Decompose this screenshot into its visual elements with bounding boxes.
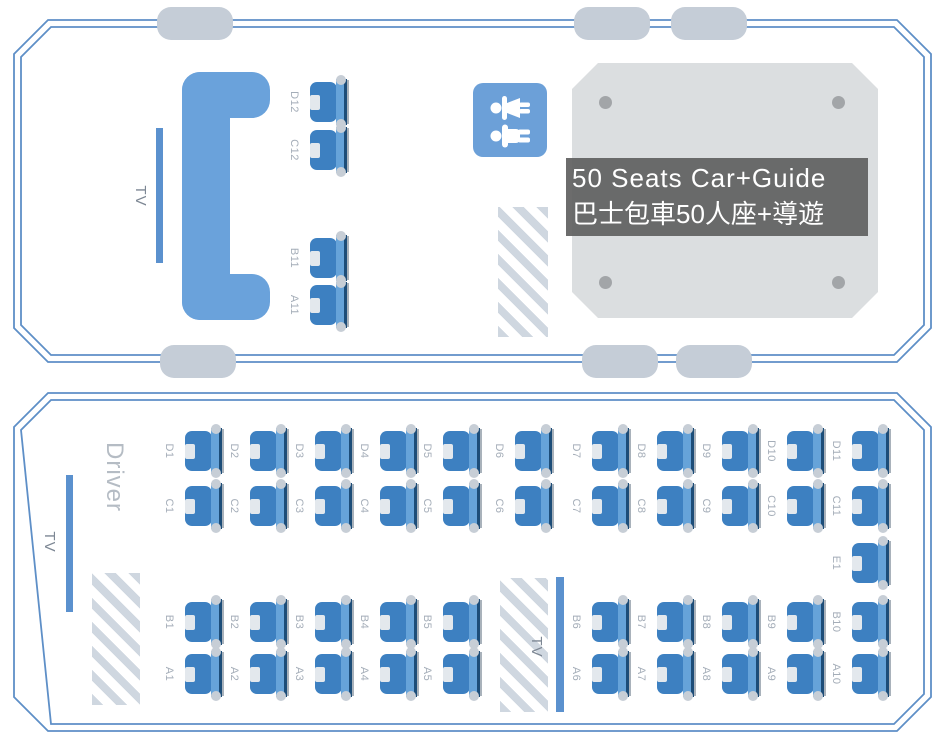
seat-d11[interactable]: D11 xyxy=(852,428,891,474)
seat-backrest-frame xyxy=(889,484,891,528)
seat-tray xyxy=(380,667,390,682)
seat-tray xyxy=(185,444,195,459)
rear-tv-label: TV xyxy=(133,176,149,216)
restroom-icon xyxy=(473,83,547,157)
seat-tray xyxy=(787,615,797,630)
seat-tray xyxy=(443,667,453,682)
seat-a10[interactable]: A10 xyxy=(852,651,891,697)
seat-tray xyxy=(185,499,195,514)
armrest-icon xyxy=(878,691,888,701)
seat-tray xyxy=(657,667,667,682)
seat-backrest-frame xyxy=(889,600,891,644)
armrest-icon xyxy=(469,595,479,605)
armrest-icon xyxy=(878,479,888,489)
seat-tray xyxy=(592,444,602,459)
armrest-icon xyxy=(541,523,551,533)
seat-tray xyxy=(443,499,453,514)
armrest-icon xyxy=(878,536,888,546)
seat-tray xyxy=(787,667,797,682)
seat-tray xyxy=(657,499,667,514)
seat-backrest-frame xyxy=(889,429,891,473)
rear-tv-screen xyxy=(156,128,163,263)
front-tv-screen xyxy=(66,475,73,612)
armrest-icon xyxy=(541,424,551,434)
seat-tray xyxy=(515,444,525,459)
seat-tray xyxy=(592,499,602,514)
armrest-icon xyxy=(541,468,551,478)
seat-tray xyxy=(250,444,260,459)
seat-backrest-frame xyxy=(480,600,482,644)
seat-tray xyxy=(722,444,732,459)
seat-tray xyxy=(185,615,195,630)
seat-tray xyxy=(310,298,320,313)
armrest-icon xyxy=(878,580,888,590)
seat-tray xyxy=(380,444,390,459)
wheel-icon xyxy=(582,345,658,378)
seat-tray xyxy=(592,615,602,630)
seat-c6[interactable]: C6 xyxy=(515,483,554,529)
armrest-icon xyxy=(878,523,888,533)
seat-tray xyxy=(443,615,453,630)
rear-door-hatch xyxy=(498,207,548,337)
seat-backrest-frame xyxy=(480,652,482,696)
wheel-icon xyxy=(574,7,650,40)
middle-tv-label: TV xyxy=(529,627,545,667)
seat-tray xyxy=(515,499,525,514)
seat-tray xyxy=(250,499,260,514)
seat-tray xyxy=(592,667,602,682)
seat-tray xyxy=(787,444,797,459)
armrest-icon xyxy=(336,123,346,133)
wheel-icon xyxy=(160,345,236,378)
armrest-icon xyxy=(469,647,479,657)
rear-bench-top-arm xyxy=(182,72,270,118)
armrest-icon xyxy=(469,691,479,701)
product-title-en: 50 Seats Car+Guide xyxy=(572,160,868,196)
seat-tray xyxy=(722,615,732,630)
armrest-icon xyxy=(878,468,888,478)
screw-icon xyxy=(832,96,845,109)
seat-tray xyxy=(852,615,862,630)
seat-tray xyxy=(443,444,453,459)
wheel-icon xyxy=(671,7,747,40)
armrest-icon xyxy=(336,75,346,85)
seat-tray xyxy=(380,615,390,630)
armrest-icon xyxy=(878,595,888,605)
screw-icon xyxy=(599,96,612,109)
seat-tray xyxy=(852,667,862,682)
seat-tray xyxy=(315,499,325,514)
seat-backrest-frame xyxy=(347,80,349,124)
bus-seat-map: TV D12 C12 B11 A11 xyxy=(0,0,945,756)
wheel-icon xyxy=(157,7,233,40)
seat-d12[interactable]: D12 xyxy=(310,79,349,125)
seat-tray xyxy=(852,499,862,514)
seat-tray xyxy=(315,444,325,459)
driver-label: Driver xyxy=(99,417,129,537)
screw-icon xyxy=(599,276,612,289)
seat-b11[interactable]: B11 xyxy=(310,235,349,281)
seat-tray xyxy=(250,615,260,630)
seat-tray xyxy=(250,667,260,682)
seat-tray xyxy=(722,667,732,682)
seat-tray xyxy=(315,615,325,630)
product-title-overlay: 50 Seats Car+Guide 巴士包車50人座+導遊 xyxy=(566,158,868,236)
seat-tray xyxy=(722,499,732,514)
product-title-zh: 巴士包車50人座+導遊 xyxy=(572,196,868,233)
front-door-hatch xyxy=(92,573,140,705)
armrest-icon xyxy=(878,424,888,434)
seat-b10[interactable]: B10 xyxy=(852,599,891,645)
armrest-icon xyxy=(336,322,346,332)
seat-tray xyxy=(852,444,862,459)
seat-backrest-frame xyxy=(347,128,349,172)
screw-icon xyxy=(832,276,845,289)
seat-backrest-frame xyxy=(889,541,891,585)
seat-tray xyxy=(310,143,320,158)
rear-bench-bottom-arm xyxy=(182,274,270,320)
seat-e1[interactable]: E1 xyxy=(852,540,891,586)
armrest-icon xyxy=(878,647,888,657)
seat-backrest-frame xyxy=(889,652,891,696)
armrest-icon xyxy=(541,479,551,489)
armrest-icon xyxy=(336,231,346,241)
seat-backrest-frame xyxy=(347,236,349,280)
seat-backrest-frame xyxy=(347,283,349,327)
seat-tray xyxy=(380,499,390,514)
seat-tray xyxy=(185,667,195,682)
seat-a5[interactable]: A5 xyxy=(443,651,482,697)
armrest-icon xyxy=(336,167,346,177)
seat-c11[interactable]: C11 xyxy=(852,483,891,529)
seat-a11[interactable]: A11 xyxy=(310,282,349,328)
seat-tray xyxy=(315,667,325,682)
seat-tray xyxy=(310,251,320,266)
wheel-icon xyxy=(676,345,752,378)
seat-b5[interactable]: B5 xyxy=(443,599,482,645)
armrest-icon xyxy=(336,278,346,288)
seat-tray xyxy=(787,499,797,514)
seat-tray xyxy=(310,95,320,110)
seat-c12[interactable]: C12 xyxy=(310,127,349,173)
seat-d6[interactable]: D6 xyxy=(515,428,554,474)
seat-tray xyxy=(852,556,862,571)
seat-tray xyxy=(657,615,667,630)
front-tv-label: TV xyxy=(42,522,58,562)
seat-tray xyxy=(657,444,667,459)
